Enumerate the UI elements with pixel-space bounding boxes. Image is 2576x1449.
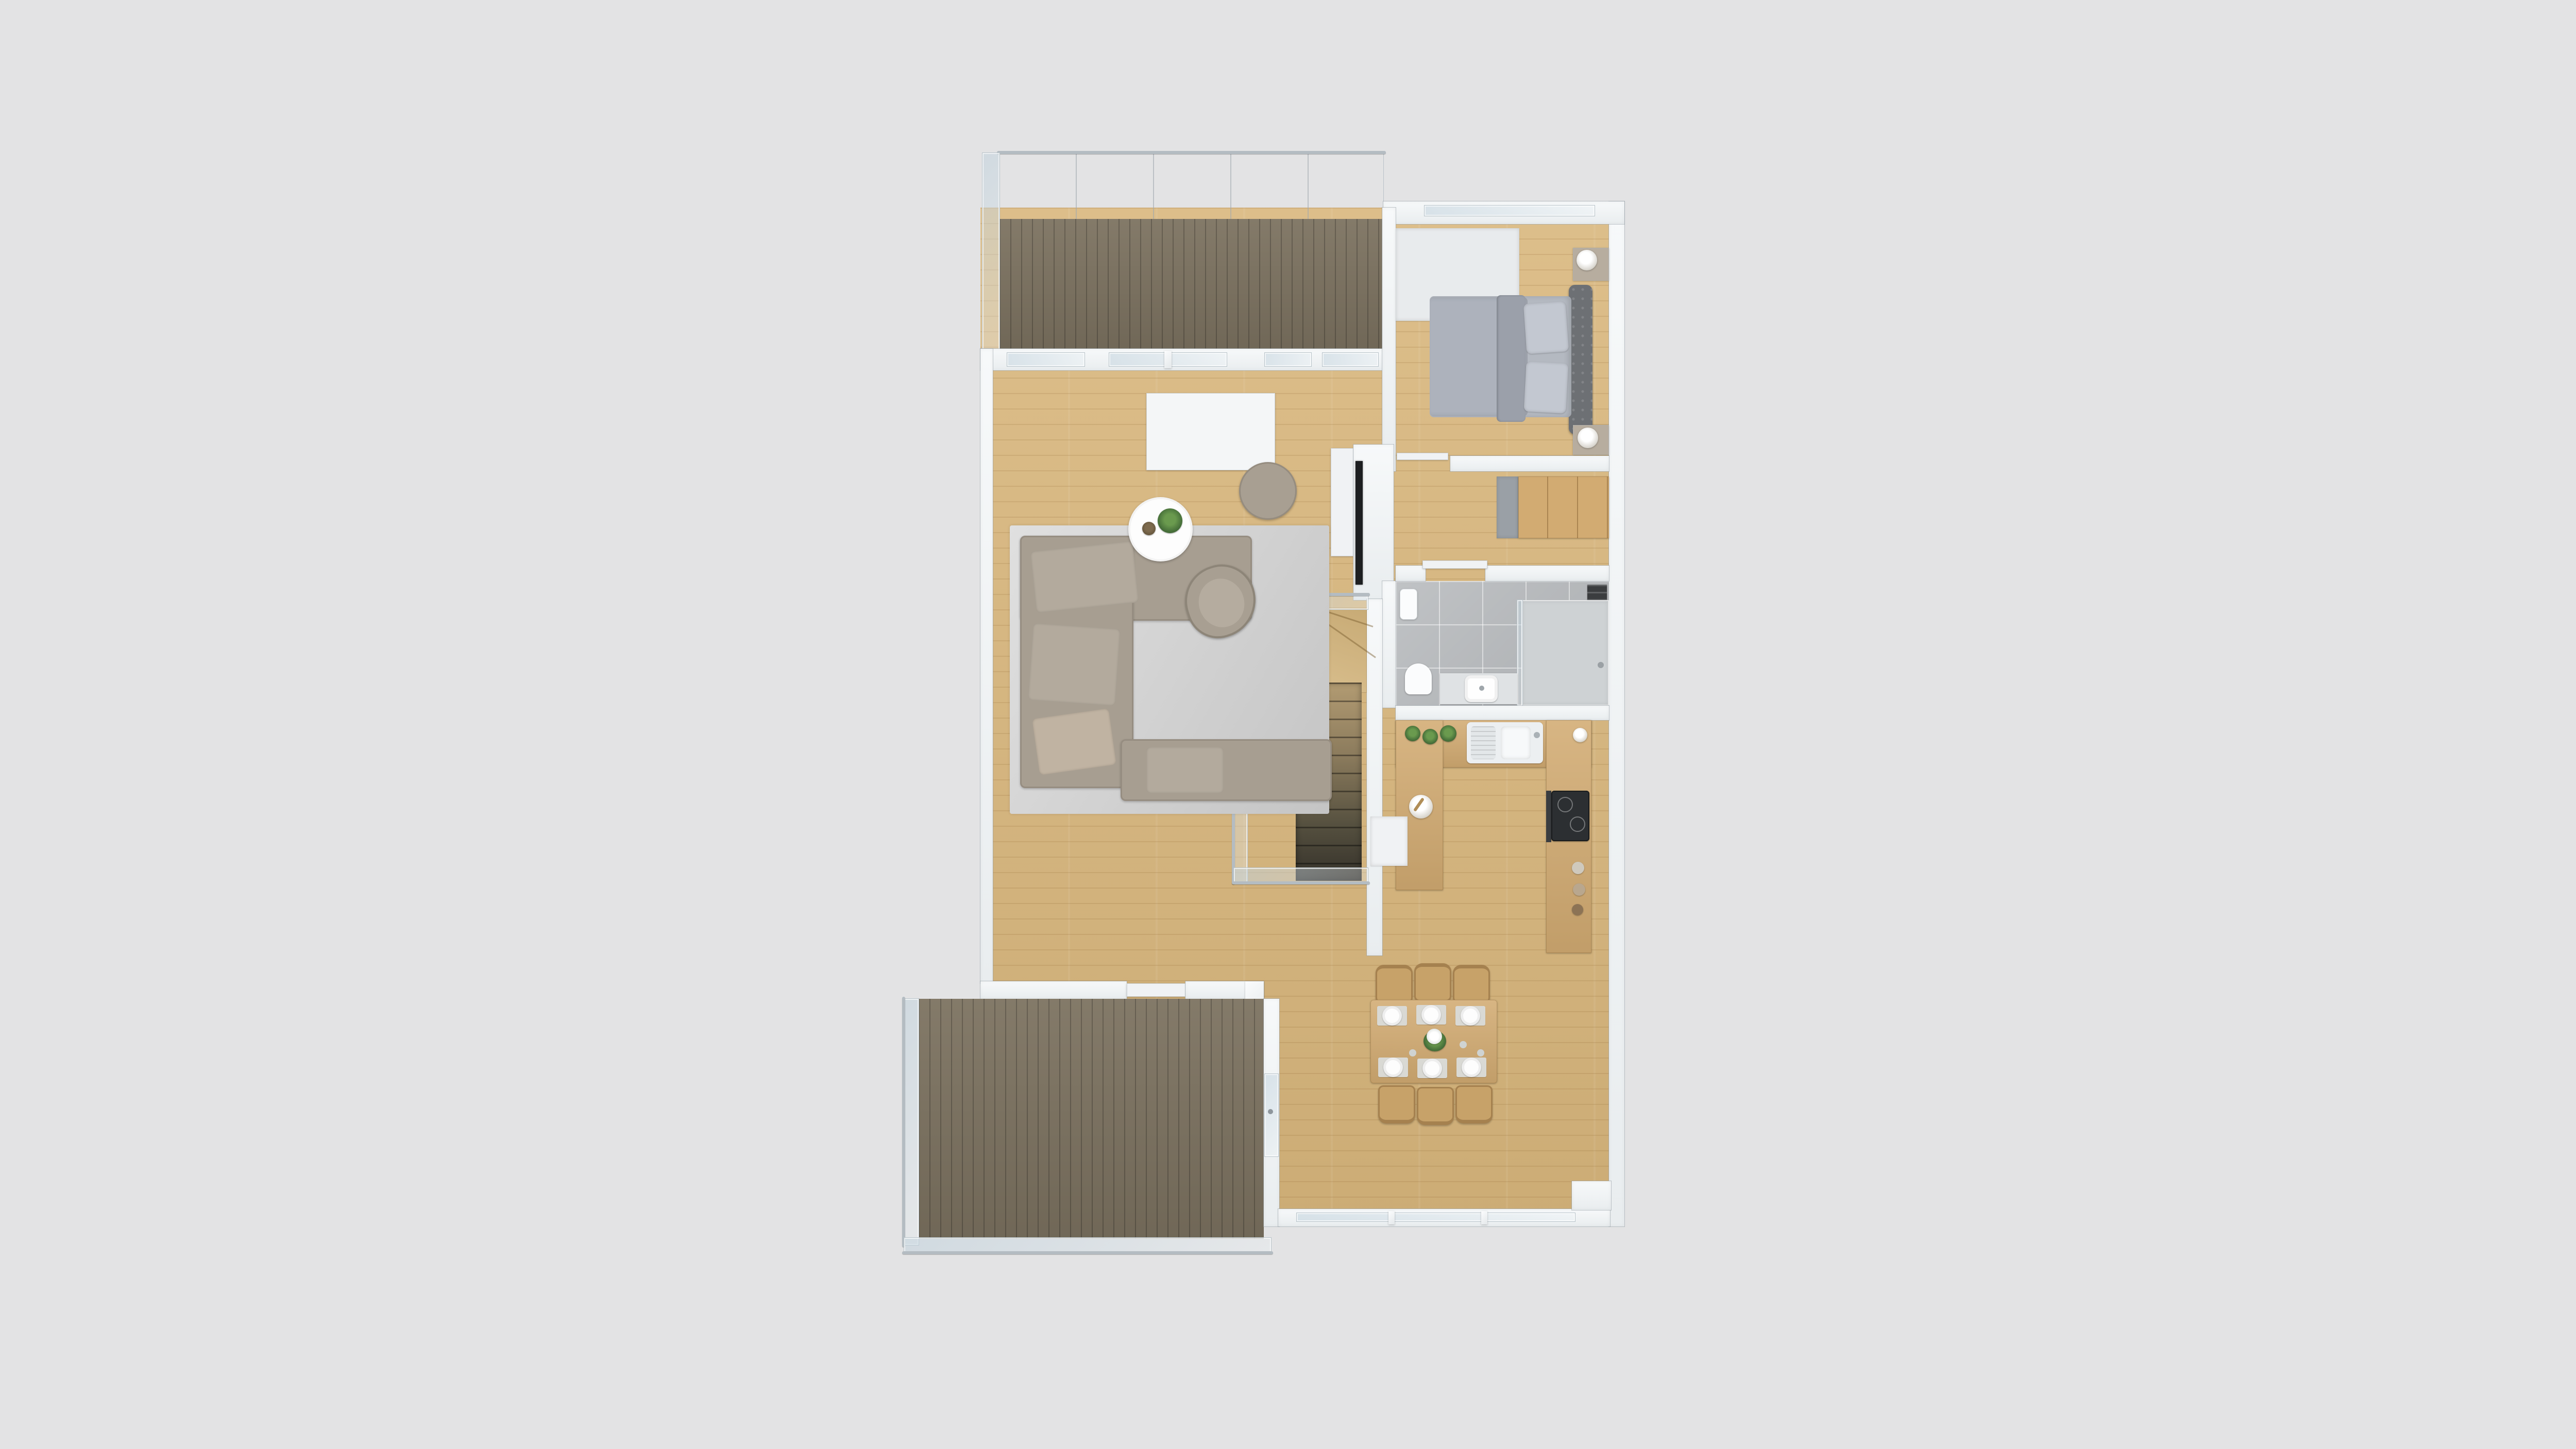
dining-chair-5 (1417, 1087, 1454, 1125)
bedside-lamp-north (1577, 250, 1597, 270)
outer-wall-right (1609, 201, 1624, 1226)
hallway-gray-cabinet (1497, 476, 1518, 538)
sofa-cushion-2 (1028, 623, 1121, 706)
dining-chair-4 (1378, 1085, 1415, 1123)
storage-jar-1 (1572, 862, 1584, 874)
bedroom-bottom-wall (1450, 456, 1609, 471)
plate-2 (1421, 1005, 1441, 1025)
dining-chair-3 (1453, 965, 1490, 1003)
table-cup-3 (1477, 1049, 1484, 1056)
living-sideboard (1331, 448, 1353, 556)
coffee-table-plant-small (1142, 522, 1156, 535)
dining-window-mullion-2 (1481, 1211, 1487, 1224)
pouf (1239, 462, 1297, 520)
plate-3 (1461, 1006, 1480, 1026)
shower-glass-panel (1517, 600, 1522, 706)
bathroom-sliding-door (1422, 560, 1487, 569)
toilet (1405, 663, 1432, 694)
dining-window-mullion-1 (1388, 1211, 1395, 1224)
herb-pot-1 (1405, 726, 1420, 741)
table-cup-1 (1409, 1049, 1416, 1056)
sink-bowl (1501, 726, 1531, 759)
balcony-screen-top-rail (997, 151, 1386, 154)
centerpiece-flowers (1427, 1029, 1442, 1044)
plate-5 (1422, 1059, 1442, 1078)
dining-bottom-windows (1297, 1213, 1575, 1221)
induction-cooktop (1551, 791, 1589, 841)
stair-railing-bottom (1234, 868, 1368, 882)
bedside-lamp-south (1578, 428, 1598, 448)
built-in-oven-edge (1546, 791, 1551, 842)
balcony-left-glass-railing (982, 153, 999, 350)
terrace-left-handrail (902, 997, 905, 1247)
bed-pillow-1 (1523, 301, 1569, 354)
living-window-right (1265, 353, 1311, 366)
floor-plan-render (904, 147, 1672, 1253)
terrace-door-threshold (1127, 983, 1185, 997)
terrace-top-wall-left (980, 981, 1127, 999)
table-cup-2 (1460, 1041, 1467, 1048)
outer-wall-left (980, 349, 993, 983)
vanity-faucet (1479, 686, 1484, 691)
hallway-wardrobe (1518, 476, 1609, 538)
bedroom-left-wall (1382, 208, 1396, 471)
bed-blanket-fold (1497, 295, 1526, 422)
bedroom-window (1425, 206, 1595, 216)
terrace-sliding-door (1265, 1074, 1278, 1156)
shower-drain (1598, 662, 1604, 668)
shower-tray (1521, 600, 1609, 706)
counter-jar (1573, 728, 1587, 742)
bathroom-left-wall (1382, 581, 1396, 708)
sofa-cushion-1 (1030, 541, 1139, 613)
bathroom-top-wall-left (1396, 566, 1426, 581)
plate-6 (1462, 1058, 1481, 1077)
dining-chair-6 (1455, 1085, 1493, 1123)
sofa-cushion-3 (1032, 708, 1116, 775)
plate-4 (1383, 1058, 1403, 1077)
window-mullion (1164, 351, 1172, 368)
sink-drainer (1471, 726, 1496, 759)
herb-pot-2 (1422, 729, 1438, 744)
cooktop-burner-2 (1570, 816, 1585, 832)
bathroom-towel (1400, 589, 1417, 620)
dining-chair-1 (1376, 965, 1413, 1003)
bathroom-top-wall-right (1485, 566, 1609, 581)
coffee-table (1128, 497, 1193, 561)
kitchen-top-wall (1396, 706, 1609, 720)
bed-pillow-2 (1523, 361, 1568, 414)
balcony-privacy-screen (999, 153, 1383, 219)
living-window-left (1007, 353, 1084, 366)
cooktop-burner-1 (1557, 797, 1573, 812)
dining-chair-2 (1414, 963, 1451, 1001)
partition-screen (1146, 393, 1275, 470)
plate-1 (1382, 1006, 1402, 1026)
herb-pot-3 (1440, 725, 1456, 742)
balcony-decking (999, 219, 1383, 350)
sink-faucet (1534, 732, 1540, 738)
bedroom-door-leaf (1397, 453, 1448, 460)
terrace-decking (919, 999, 1264, 1239)
terrace-door-handle (1268, 1109, 1273, 1114)
sofa-cushion-4 (1146, 747, 1224, 793)
kitchen-open-end-unit (1370, 816, 1408, 866)
bed-headboard (1569, 285, 1592, 434)
coffee-table-plant-large (1158, 508, 1182, 533)
wall-tv (1355, 461, 1363, 585)
terrace-bottom-handrail (902, 1251, 1273, 1254)
living-window-far-right (1323, 353, 1378, 366)
dining-corner-step-wall (1572, 1181, 1611, 1210)
terrace-left-glass-railing (904, 999, 919, 1245)
stair-handrail-bottom (1232, 881, 1370, 884)
